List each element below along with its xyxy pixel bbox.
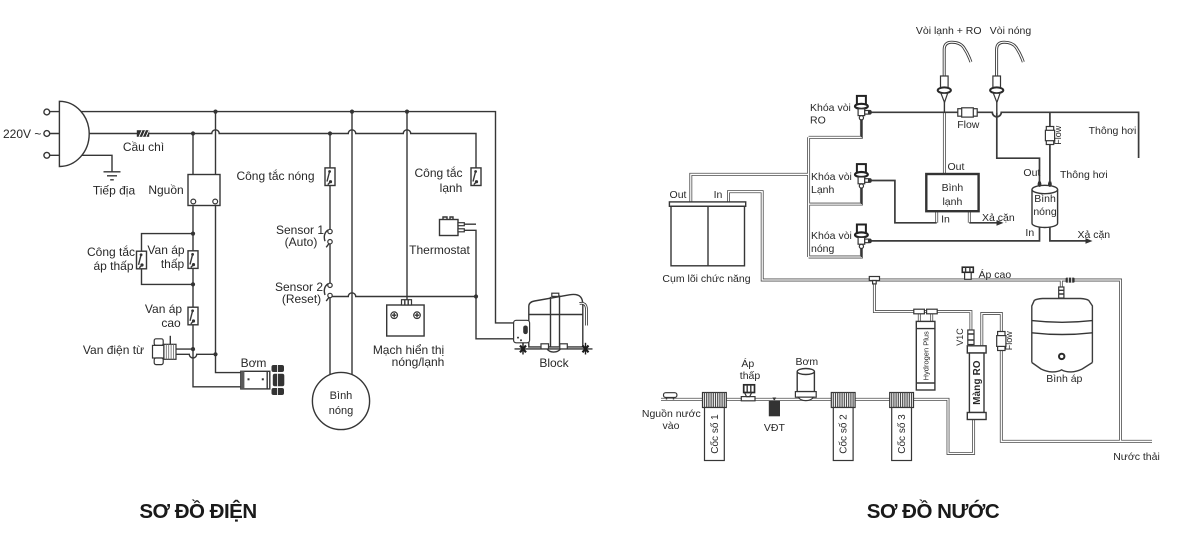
svg-text:lạnh: lạnh bbox=[440, 181, 463, 195]
svg-text:Cốc số 1: Cốc số 1 bbox=[709, 414, 721, 454]
svg-text:Cốc số 2: Cốc số 2 bbox=[838, 414, 850, 454]
svg-text:SƠ ĐỒ ĐIỆN: SƠ ĐỒ ĐIỆN bbox=[139, 499, 256, 523]
svg-text:Lạnh: Lạnh bbox=[811, 184, 835, 196]
svg-text:Cốc số 3: Cốc số 3 bbox=[896, 414, 908, 454]
svg-text:Công tắc: Công tắc bbox=[87, 244, 135, 259]
svg-text:Hydrogen Plus: Hydrogen Plus bbox=[922, 331, 931, 380]
svg-text:nóng/lạnh: nóng/lạnh bbox=[392, 355, 445, 369]
svg-text:Thông hơi: Thông hơi bbox=[1060, 169, 1108, 181]
svg-text:Cụm lõi chức năng: Cụm lõi chức năng bbox=[662, 273, 750, 285]
svg-text:Công tắc nóng: Công tắc nóng bbox=[236, 168, 314, 183]
svg-text:220V ~: 220V ~ bbox=[3, 127, 41, 141]
svg-text:Bình: Bình bbox=[1034, 193, 1056, 205]
svg-text:Van áp: Van áp bbox=[145, 302, 182, 316]
svg-text:Flow: Flow bbox=[1053, 125, 1063, 145]
svg-text:SƠ ĐỒ NƯỚC: SƠ ĐỒ NƯỚC bbox=[867, 499, 1000, 523]
svg-text:Bơm: Bơm bbox=[241, 356, 267, 370]
svg-text:Xả cặn: Xả cặn bbox=[1077, 229, 1110, 241]
svg-text:Nguồn: Nguồn bbox=[148, 183, 183, 197]
svg-text:Out: Out bbox=[1023, 167, 1040, 179]
svg-text:(Reset): (Reset) bbox=[282, 292, 321, 306]
svg-text:Out: Out bbox=[670, 189, 687, 201]
svg-text:Khóa vòi: Khóa vòi bbox=[810, 102, 851, 114]
svg-text:Flow: Flow bbox=[957, 119, 980, 131]
svg-text:Van điện từ: Van điện từ bbox=[83, 343, 144, 357]
svg-text:Block: Block bbox=[539, 356, 569, 370]
svg-text:Khóa vòi: Khóa vòi bbox=[811, 171, 852, 183]
svg-text:Áp cao: Áp cao bbox=[979, 268, 1012, 281]
svg-text:Áp: Áp bbox=[741, 357, 754, 370]
svg-text:thấp: thấp bbox=[161, 257, 185, 271]
svg-text:vào: vào bbox=[663, 420, 680, 432]
svg-text:Vòi nóng: Vòi nóng bbox=[990, 25, 1032, 37]
svg-text:VĐT: VĐT bbox=[764, 422, 786, 434]
svg-text:In: In bbox=[714, 189, 723, 201]
svg-text:V1C: V1C bbox=[955, 328, 965, 346]
svg-text:Xả cặn: Xả cặn bbox=[982, 212, 1015, 224]
svg-text:Cầu chì: Cầu chì bbox=[123, 140, 164, 154]
svg-text:Công tắc: Công tắc bbox=[414, 165, 462, 180]
svg-text:Thermostat: Thermostat bbox=[409, 243, 470, 257]
svg-text:nóng: nóng bbox=[1033, 206, 1057, 218]
svg-text:Màng RO: Màng RO bbox=[972, 360, 983, 405]
svg-text:Khóa vòi: Khóa vòi bbox=[811, 230, 852, 242]
svg-text:Bình: Bình bbox=[330, 390, 353, 402]
svg-text:Vòi lạnh + RO: Vòi lạnh + RO bbox=[916, 25, 982, 37]
svg-text:nóng: nóng bbox=[811, 243, 835, 255]
svg-text:Bơm: Bơm bbox=[795, 356, 818, 368]
svg-text:lạnh: lạnh bbox=[942, 196, 962, 208]
svg-text:cao: cao bbox=[161, 316, 181, 330]
svg-text:Thông hơi: Thông hơi bbox=[1089, 125, 1137, 137]
svg-text:nóng: nóng bbox=[329, 405, 353, 417]
svg-text:Van áp: Van áp bbox=[147, 243, 184, 257]
svg-text:Nước thải: Nước thải bbox=[1113, 451, 1160, 463]
svg-text:(Auto): (Auto) bbox=[285, 235, 318, 249]
svg-text:áp thấp: áp thấp bbox=[93, 259, 133, 273]
svg-text:thấp: thấp bbox=[740, 370, 761, 382]
svg-text:Nguồn nước: Nguồn nước bbox=[642, 408, 701, 420]
svg-text:Flow: Flow bbox=[1004, 331, 1014, 351]
svg-text:Out: Out bbox=[948, 161, 965, 173]
svg-text:RO: RO bbox=[810, 115, 826, 127]
svg-text:Bình: Bình bbox=[942, 182, 964, 194]
svg-text:In: In bbox=[941, 214, 950, 226]
svg-text:In: In bbox=[1025, 227, 1034, 239]
svg-text:Tiếp địa: Tiếp địa bbox=[93, 184, 136, 198]
svg-text:Bình áp: Bình áp bbox=[1046, 373, 1082, 385]
